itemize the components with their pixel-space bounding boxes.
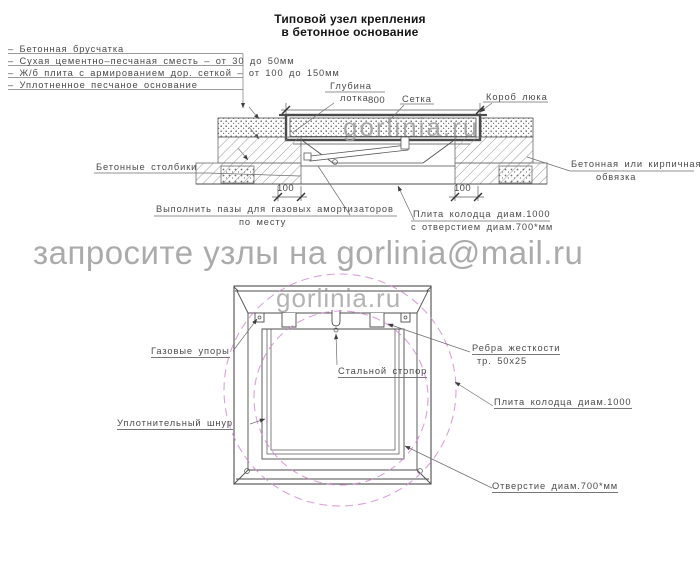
dim-100-right-text: 100 [454,184,471,194]
dim-800-text: 800 [368,96,385,106]
note-strut-slots-line1: Выполнить пазы для газовых амортизаторов [156,204,394,214]
stiffener-notch-left [282,313,296,327]
gas-strut-bracket-left [255,313,264,322]
label-well-plate-line2: с отверстием диам.700*мм [411,222,553,232]
label-tray-depth-line2: лотка [340,93,369,103]
slab-left [218,137,301,163]
label-plan-opening: Отверстие диам.700*мм [492,481,618,493]
legend-item-slab: – Ж/б плита с армированием дор. сеткой –… [8,68,340,78]
label-gas-struts: Газовые упоры [151,346,230,358]
slab-right [455,137,533,163]
hinge-trapezoid [237,291,428,313]
label-ribs-line1: Ребра жесткости [472,343,560,355]
label-tray-depth-line1: Глубина [330,81,372,91]
plan-view [224,274,493,506]
label-ribs-line2: тр. 50х25 [477,356,527,366]
paving-inside-box [290,118,476,137]
legend-item-paving: – Бетонная брусчатка [8,44,124,54]
label-edging-line1: Бетонная или кирпичная [571,159,700,169]
note-strut-slots-line2: по месту [239,217,286,227]
label-sealing-cord: Уплотнительный шнур [117,418,233,430]
page-title-line1: Типовой узел крепления [0,12,700,26]
paving-layer-right [481,118,533,137]
label-hatch-box: Короб люка [486,92,548,102]
legend-item-mix: – Сухая цементно–песчаная сместь – от 30… [8,56,294,66]
gas-strut-bracket-right [401,313,410,322]
label-steel-stopper: Стальной стопор [338,366,427,378]
label-well-plate-line1: Плита колодца диам.1000 [413,209,551,219]
section-drawing [8,54,694,222]
label-edging-line2: обвязка [596,172,636,182]
sand-pocket-right [499,166,532,183]
label-concrete-posts: Бетонные столбики [96,162,197,172]
drawing-sheet: Типовой узел крепления в бетонное основа… [0,0,700,568]
legend-item-sand: – Уплотненное песчаное основание [8,80,198,90]
page-title-line2: в бетонное основание [0,25,700,39]
section-leaders [94,92,694,221]
label-mesh: Сетка [402,94,432,104]
stiffener-notch-right [370,313,384,327]
paving-layer-left [218,118,286,137]
dim-100-left-text: 100 [277,184,294,194]
steel-stopper [332,310,340,326]
label-plan-well-plate: Плита колодца диам.1000 [494,397,632,409]
